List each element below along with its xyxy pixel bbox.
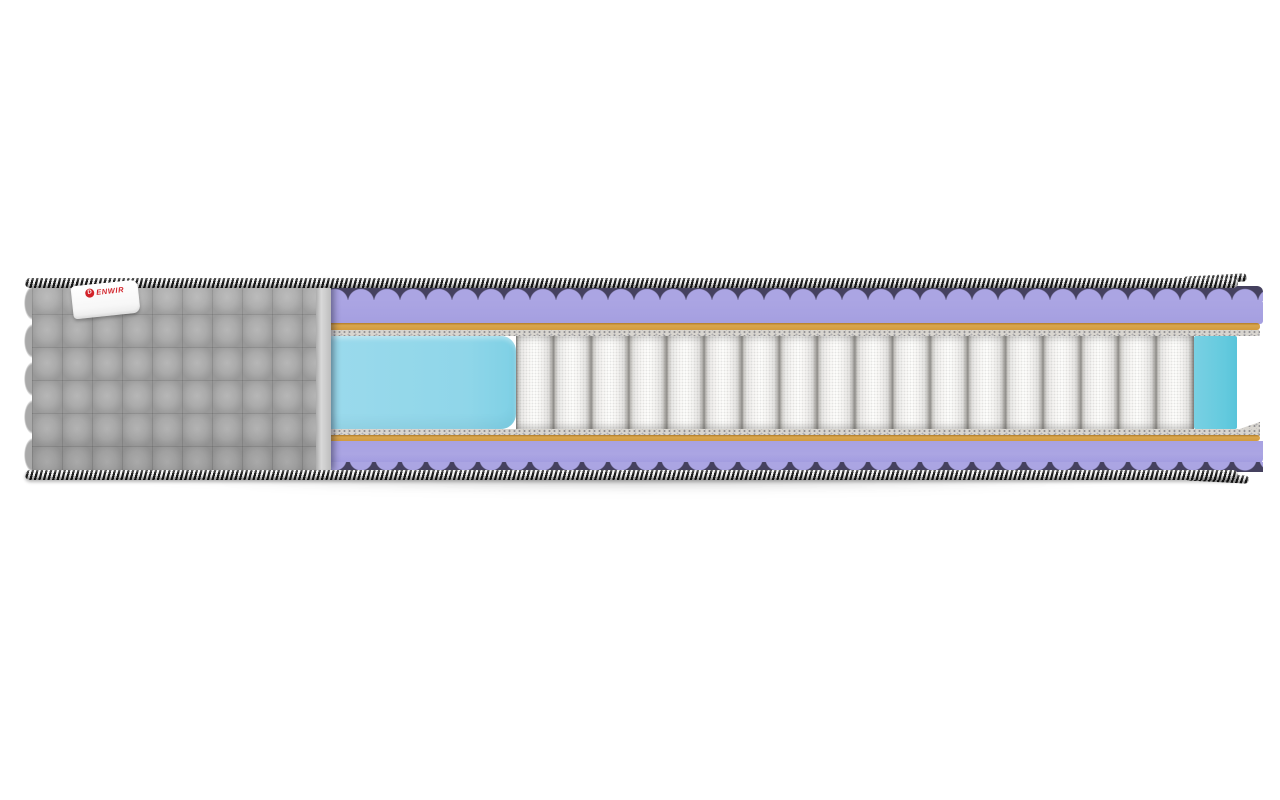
cover-cut-edge [316, 281, 331, 473]
wave-foam-layer-top [322, 286, 1263, 301]
side-foam-left [322, 336, 516, 429]
brand-logo-icon: D [85, 288, 95, 298]
edge-piping-top [25, 278, 1238, 288]
brand-label-tag: D ENWIR [70, 280, 140, 320]
edge-piping-bottom [25, 470, 1238, 480]
purple-foam-layer-top [322, 300, 1263, 324]
purple-foam-layer-bottom [322, 441, 1263, 463]
pocket-springs [516, 336, 1194, 429]
quilted-cover [25, 281, 331, 473]
cross-section [322, 277, 1263, 480]
brand-label-text: ENWIR [96, 285, 125, 297]
spring-core [322, 336, 1263, 429]
coir-layer-top [322, 323, 1260, 330]
product-image-stage: D ENWIR [0, 0, 1280, 800]
mattress-cutaway: D ENWIR [25, 277, 1240, 480]
side-foam-right [1194, 336, 1237, 429]
